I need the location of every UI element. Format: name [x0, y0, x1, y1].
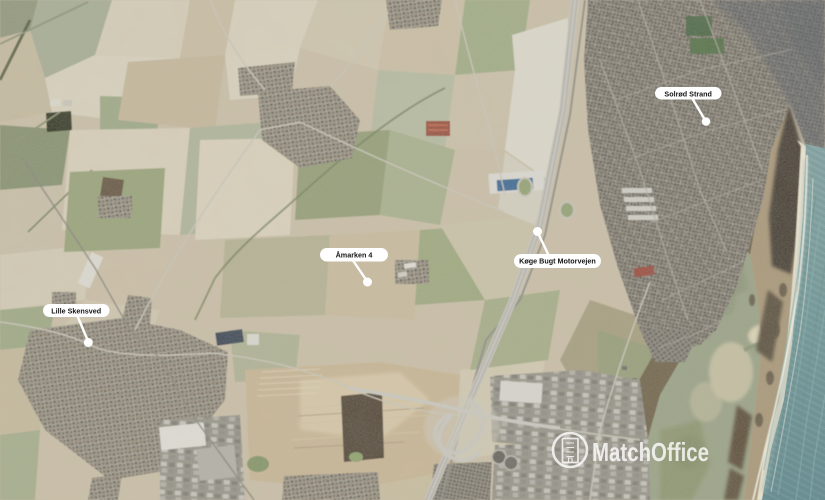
svg-text:Køge Bugt Motorvejen: Køge Bugt Motorvejen — [519, 257, 596, 266]
svg-text:MatchOffice: MatchOffice — [592, 437, 709, 467]
svg-text:Lille Skensved: Lille Skensved — [51, 307, 101, 316]
svg-text:Solrød Strand: Solrød Strand — [664, 89, 712, 98]
svg-text:Åmarken 4: Åmarken 4 — [336, 251, 373, 260]
